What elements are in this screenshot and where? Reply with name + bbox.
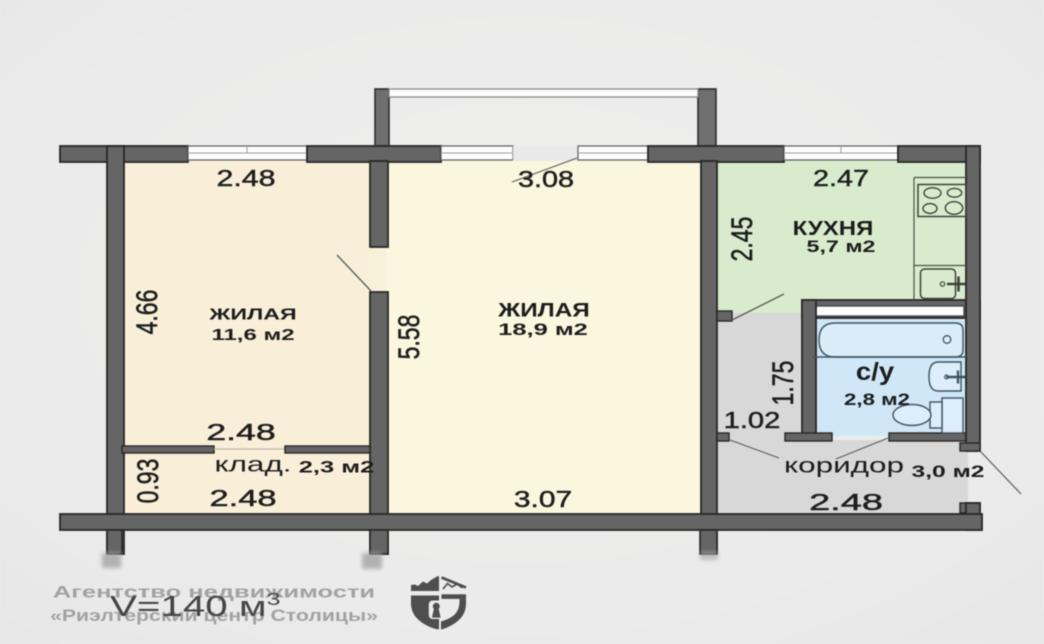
svg-text:клад.: клад. — [214, 453, 291, 477]
svg-text:ЖИЛАЯ: ЖИЛАЯ — [497, 299, 590, 321]
svg-text:с/у: с/у — [856, 357, 895, 386]
svg-text:5.58: 5.58 — [392, 315, 426, 360]
svg-text:3.07: 3.07 — [514, 486, 572, 512]
svg-text:1.75: 1.75 — [766, 361, 800, 406]
svg-text:2.45: 2.45 — [725, 217, 759, 262]
svg-text:4.66: 4.66 — [130, 290, 164, 335]
svg-text:3,0 м2: 3,0 м2 — [911, 463, 984, 481]
svg-text:11,6 м2: 11,6 м2 — [211, 327, 294, 344]
svg-text:КУХНЯ: КУХНЯ — [793, 217, 874, 240]
svg-text:5,7 м2: 5,7 м2 — [807, 238, 876, 256]
svg-text:1.02: 1.02 — [724, 407, 781, 433]
svg-text:2.47: 2.47 — [813, 165, 869, 192]
svg-text:2,3 м2: 2,3 м2 — [299, 457, 375, 477]
svg-text:V=140 м3: V=140 м3 — [110, 588, 281, 622]
svg-text:2,8 м2: 2,8 м2 — [844, 390, 910, 409]
svg-text:2.48: 2.48 — [209, 486, 276, 512]
svg-text:18,9 м2: 18,9 м2 — [498, 319, 588, 339]
svg-text:0.93: 0.93 — [131, 459, 165, 504]
svg-text:ЖИЛАЯ: ЖИЛАЯ — [208, 306, 296, 324]
svg-text:3.08: 3.08 — [518, 166, 574, 193]
svg-text:2.48: 2.48 — [809, 489, 883, 515]
svg-text:2.48: 2.48 — [206, 420, 275, 445]
svg-text:коридор: коридор — [784, 454, 904, 478]
svg-text:2.48: 2.48 — [216, 166, 275, 192]
